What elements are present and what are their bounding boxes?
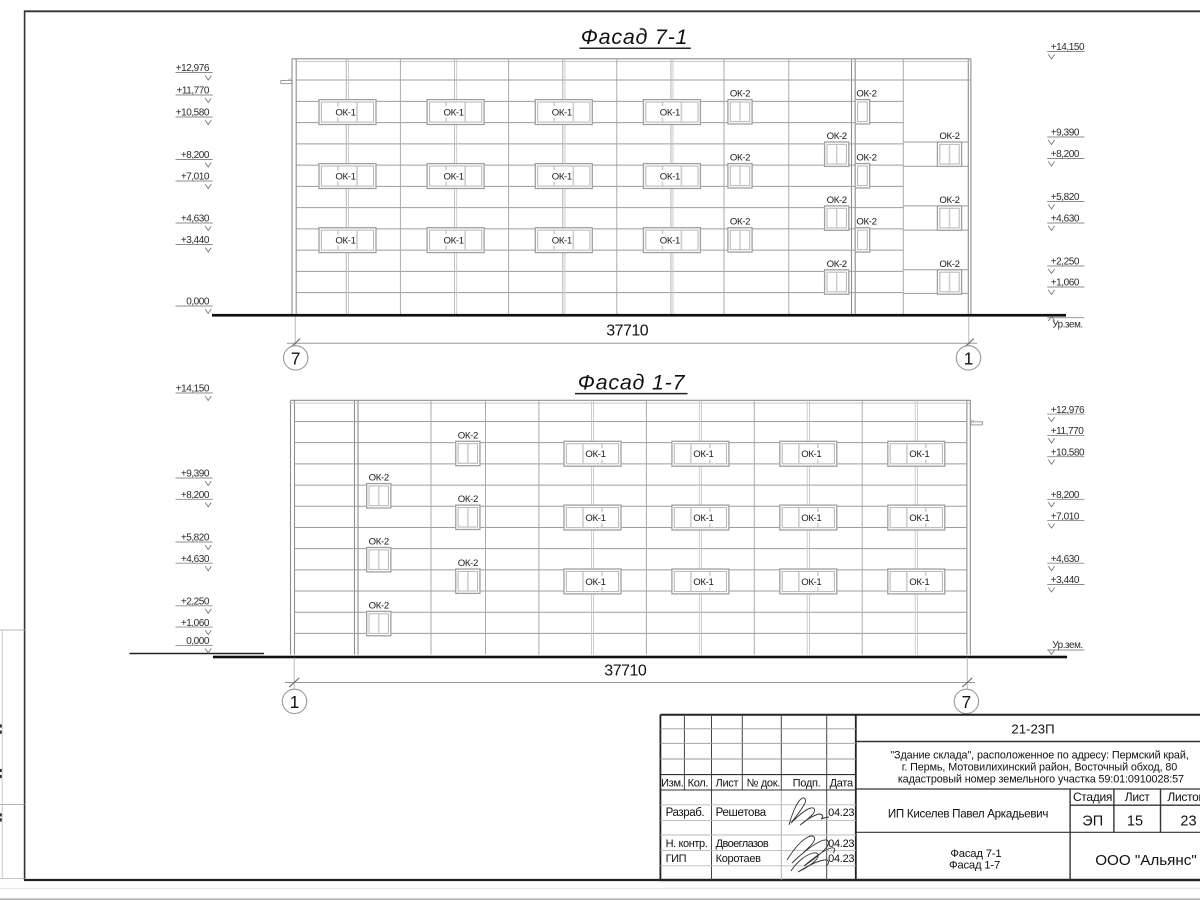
svg-text:ИП Киселев Павел Аркадьевич: ИП Киселев Павел Аркадьевич	[888, 808, 1048, 821]
svg-text:ОК-1: ОК-1	[909, 513, 929, 524]
svg-text:ЭП: ЭП	[1082, 813, 1103, 829]
svg-text:7: 7	[291, 349, 301, 369]
svg-text:ОК-2: ОК-2	[939, 195, 959, 206]
svg-text:ОК-1: ОК-1	[801, 449, 821, 460]
svg-text:Ур.зем.: Ур.зем.	[1052, 640, 1082, 651]
svg-text:ОК-1: ОК-1	[552, 171, 572, 182]
svg-text:37710: 37710	[606, 322, 649, 339]
svg-text:ОК-2: ОК-2	[939, 131, 959, 142]
svg-text:Н. контр.: Н. контр.	[666, 838, 708, 850]
svg-text:ОК-2: ОК-2	[827, 259, 847, 270]
svg-text:15: 15	[1127, 813, 1143, 829]
svg-text:ОК-2: ОК-2	[827, 131, 847, 142]
svg-text:ОК-1: ОК-1	[909, 449, 929, 460]
svg-text:ОК-1: ОК-1	[335, 107, 355, 118]
svg-text:ОК-2: ОК-2	[458, 558, 478, 569]
svg-text:ОК-1: ОК-1	[660, 107, 680, 118]
svg-text:ОК-2: ОК-2	[369, 537, 389, 548]
svg-text:Листов: Листов	[1167, 790, 1200, 804]
svg-text:ОК-1: ОК-1	[660, 236, 680, 247]
svg-text:ОК-2: ОК-2	[856, 217, 876, 228]
svg-text:ОК-1: ОК-1	[585, 449, 605, 460]
svg-text:Кол.: Кол.	[688, 777, 709, 789]
svg-text:Фасад 1-7: Фасад 1-7	[578, 370, 686, 394]
svg-text:ОК-1: ОК-1	[801, 513, 821, 524]
svg-text:г. Пермь, Мотовилихинский райо: г. Пермь, Мотовилихинский район, Восточн…	[902, 761, 1177, 773]
svg-text:Двоеглазов: Двоеглазов	[716, 838, 769, 850]
svg-text:1: 1	[964, 349, 974, 369]
svg-text:Лист: Лист	[1125, 790, 1151, 804]
svg-text:Подп.: Подп.	[793, 777, 821, 789]
svg-text:ОК-2: ОК-2	[730, 217, 750, 228]
svg-text:Разраб.: Разраб.	[666, 807, 705, 819]
svg-text:23: 23	[1180, 813, 1196, 829]
svg-text:ОК-1: ОК-1	[585, 577, 605, 588]
svg-text:ОК-2: ОК-2	[458, 430, 478, 441]
svg-text:Стадия: Стадия	[1073, 790, 1112, 804]
svg-text:Фасад 7-1: Фасад 7-1	[581, 25, 688, 49]
svg-text:04.23: 04.23	[828, 853, 854, 865]
svg-text:ОК-1: ОК-1	[552, 236, 572, 247]
svg-text:№ док.: № док.	[747, 777, 781, 789]
svg-text:Лист: Лист	[716, 777, 739, 789]
svg-text:7: 7	[962, 692, 972, 712]
svg-text:Коротаев: Коротаев	[716, 853, 762, 865]
svg-text:Решетова: Решетова	[716, 807, 767, 819]
svg-text:ОК-1: ОК-1	[660, 171, 680, 182]
svg-text:ОК-1: ОК-1	[444, 107, 464, 118]
svg-text:ОК-1: ОК-1	[444, 236, 464, 247]
svg-text:1: 1	[290, 692, 300, 712]
svg-text:37710: 37710	[604, 662, 647, 679]
svg-text:ОК-1: ОК-1	[801, 577, 821, 588]
svg-text:ОК-1: ОК-1	[693, 577, 713, 588]
svg-text:ОК-2: ОК-2	[369, 473, 389, 484]
svg-text:ОК-1: ОК-1	[585, 513, 605, 524]
svg-text:ОК-2: ОК-2	[730, 89, 750, 100]
svg-text:ОК-1: ОК-1	[693, 449, 713, 460]
svg-text:ОК-2: ОК-2	[730, 153, 750, 164]
svg-text:Фасад 1-7: Фасад 1-7	[949, 860, 1000, 872]
svg-text:ОК-2: ОК-2	[458, 494, 478, 505]
svg-text:ОК-2: ОК-2	[856, 89, 876, 100]
svg-text:"Здание склада", расположенное: "Здание склада", расположенное по адресу…	[890, 750, 1188, 762]
svg-text:Ур.зем.: Ур.зем.	[1052, 319, 1082, 330]
svg-text:кадастровый номер земельного у: кадастровый номер земельного участка 59:…	[898, 773, 1184, 785]
svg-text:04.23: 04.23	[828, 807, 854, 819]
svg-text:ОК-2: ОК-2	[939, 259, 959, 270]
svg-text:ОК-1: ОК-1	[552, 107, 572, 118]
svg-text:ОК-2: ОК-2	[369, 600, 389, 611]
svg-text:ОК-2: ОК-2	[827, 195, 847, 206]
svg-text:21-23П: 21-23П	[1011, 721, 1054, 736]
svg-text:Изм.: Изм.	[661, 777, 684, 789]
svg-text:ОК-1: ОК-1	[335, 236, 355, 247]
svg-text:ГИП: ГИП	[666, 853, 687, 865]
svg-text:Фасад 7-1: Фасад 7-1	[950, 848, 1001, 860]
svg-text:ОК-1: ОК-1	[444, 171, 464, 182]
svg-text:Дата: Дата	[830, 777, 854, 789]
svg-text:ОК-2: ОК-2	[856, 153, 876, 164]
svg-text:ОК-1: ОК-1	[909, 577, 929, 588]
svg-text:ООО "Альянс": ООО "Альянс"	[1095, 852, 1197, 869]
svg-text:ОК-1: ОК-1	[693, 513, 713, 524]
svg-text:ОК-1: ОК-1	[335, 171, 355, 182]
